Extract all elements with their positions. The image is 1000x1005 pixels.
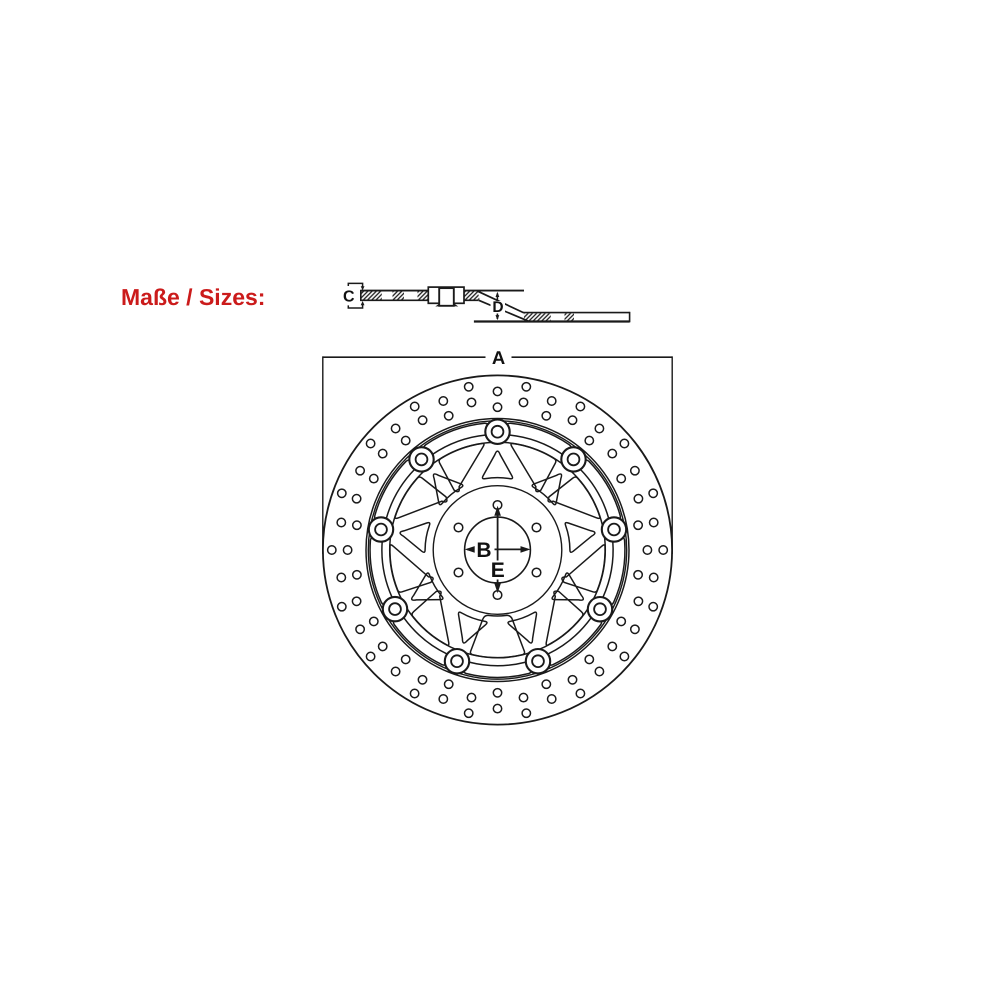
svg-text:C: C	[343, 289, 355, 306]
svg-text:Maße / Sizes:: Maße / Sizes:	[121, 284, 265, 310]
svg-text:B: B	[476, 539, 491, 562]
svg-text:A: A	[492, 347, 505, 368]
svg-text:E: E	[491, 559, 505, 582]
svg-text:D: D	[492, 299, 503, 316]
